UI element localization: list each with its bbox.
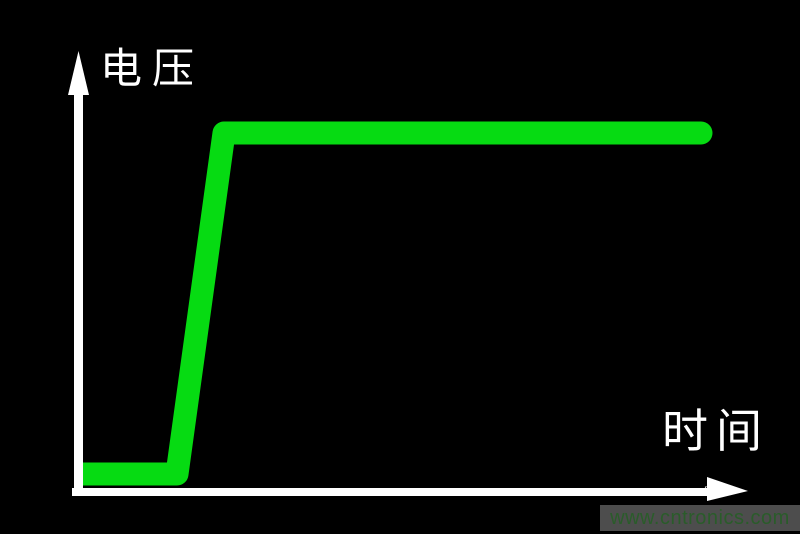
x-axis-label-small: 时间 [704, 486, 732, 496]
watermark-url: www.cntronics.com [610, 507, 790, 530]
x-axis-line [72, 488, 710, 496]
y-axis-label: 电压 [100, 48, 204, 90]
y-axis-line [74, 85, 83, 496]
waveform-figure: 电压 时间 时间 www.cntronics.com [0, 0, 800, 534]
y-axis-arrow-icon [68, 51, 89, 95]
x-axis-label: 时间 [662, 408, 770, 454]
watermark-bar: www.cntronics.com [600, 505, 800, 531]
voltage-curve-end-cap [690, 122, 713, 145]
voltage-curve [82, 133, 701, 474]
